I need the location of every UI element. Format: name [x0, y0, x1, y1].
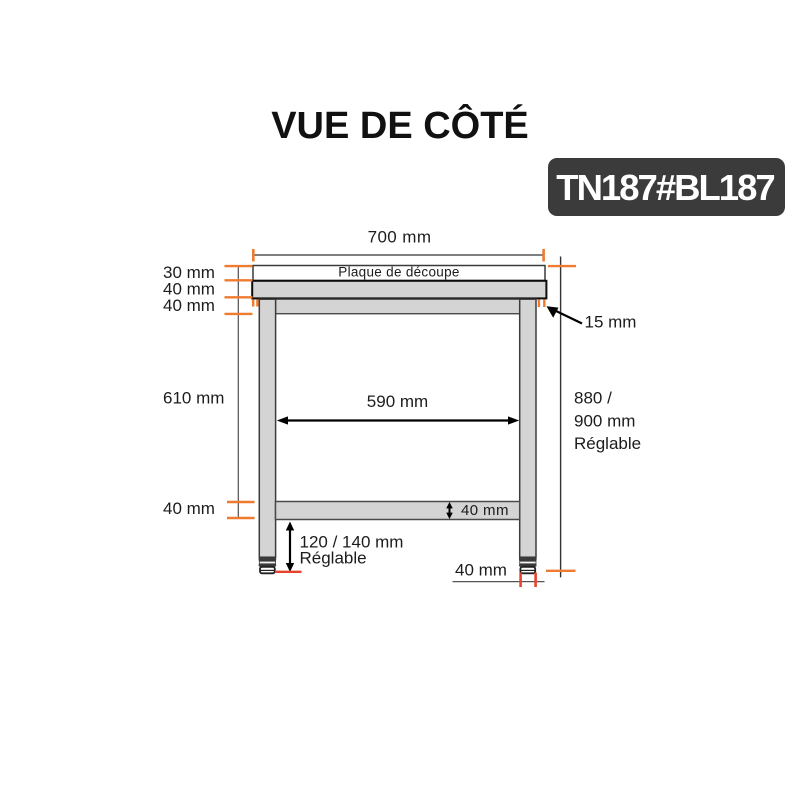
svg-text:40 mm: 40 mm	[461, 502, 509, 519]
svg-text:TN187#BL187: TN187#BL187	[556, 167, 774, 208]
svg-text:590 mm: 590 mm	[367, 392, 428, 411]
svg-text:40 mm: 40 mm	[163, 499, 215, 518]
svg-text:Plaque de découpe: Plaque de découpe	[338, 265, 459, 280]
svg-text:Réglable: Réglable	[574, 434, 641, 453]
svg-text:40 mm: 40 mm	[455, 561, 507, 580]
svg-text:40 mm: 40 mm	[163, 296, 215, 315]
svg-text:VUE DE CÔTÉ: VUE DE CÔTÉ	[271, 102, 529, 147]
svg-text:610 mm: 610 mm	[163, 389, 224, 408]
svg-text:15 mm: 15 mm	[585, 313, 637, 332]
svg-text:700 mm: 700 mm	[368, 228, 432, 247]
svg-text:900 mm: 900 mm	[574, 412, 635, 431]
svg-text:Réglable: Réglable	[300, 549, 367, 568]
svg-text:880 /: 880 /	[574, 389, 612, 408]
